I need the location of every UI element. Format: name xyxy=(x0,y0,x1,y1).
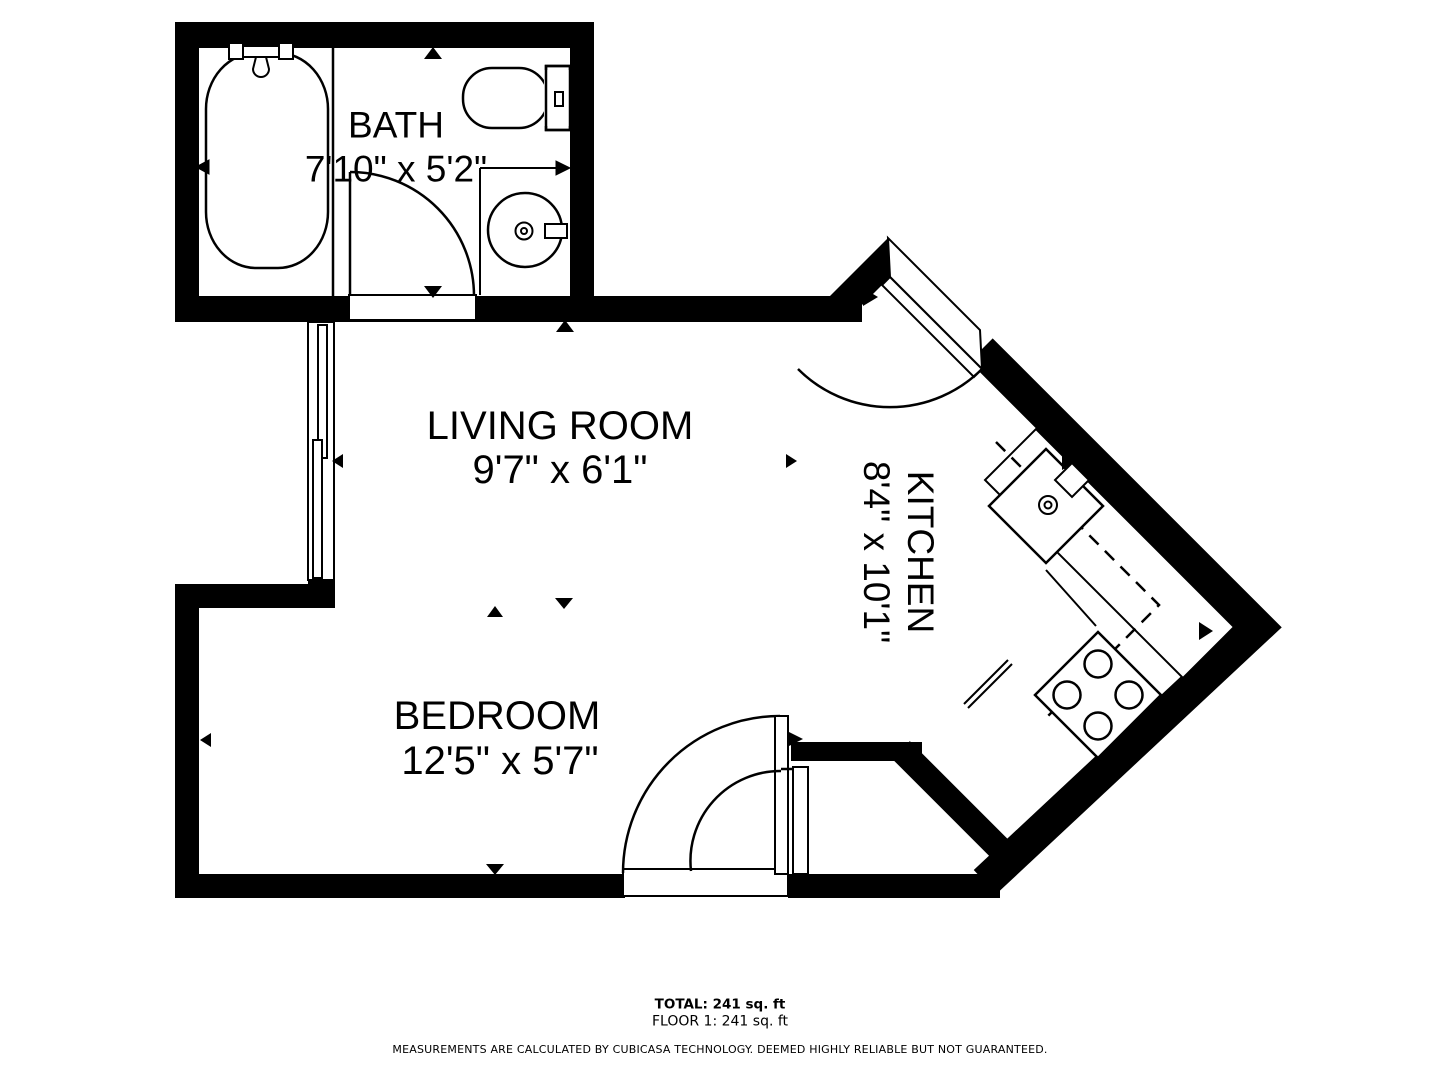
entry-door-leaf xyxy=(775,716,788,874)
marker-up-bedroom-top xyxy=(487,606,503,617)
floorplan-drawing xyxy=(0,0,1440,1080)
counter-end-line-b xyxy=(968,664,1012,708)
wall-bottom-left xyxy=(175,874,625,898)
kitchen-room-dims: 8'4" x 10'1" xyxy=(854,461,898,643)
entry-door-arc-small xyxy=(690,771,781,871)
window-pane-upper xyxy=(318,325,327,458)
floorplan-canvas: BATH 7'10" x 5'2" LIVING ROOM 9'7" x 6'1… xyxy=(0,0,1440,1080)
floor-area-text: FLOOR 1: 241 sq. ft xyxy=(652,1014,788,1029)
bath-door-arc xyxy=(350,172,474,296)
bath-room-label: BATH xyxy=(348,106,444,147)
entry-door-arc xyxy=(623,716,780,873)
marker-up-bath xyxy=(424,47,442,59)
total-area-text: TOTAL: 241 sq. ft xyxy=(655,998,786,1013)
kitchen-door-arc xyxy=(798,369,982,407)
kitchen-faucet-inner xyxy=(1045,502,1052,509)
entry-door-threshold xyxy=(623,869,788,896)
bath-door-threshold xyxy=(349,295,476,320)
wall-bath-left xyxy=(175,22,199,322)
wall-vestibule-diagonal xyxy=(901,750,1005,854)
bathtub-spout xyxy=(253,57,269,77)
window-pane-lower xyxy=(313,440,322,578)
marker-left-bedroom xyxy=(200,733,211,747)
bathtub-faucet-right-knob xyxy=(279,43,293,59)
wall-bottom-right xyxy=(788,874,1000,898)
toilet-flush-button xyxy=(555,92,563,106)
marker-right-living xyxy=(786,454,797,468)
bath-room-dims: 7'10" x 5'2" xyxy=(305,150,487,191)
kitchen-room-label: KITCHEN xyxy=(898,461,942,643)
bedroom-room-label: BEDROOM xyxy=(394,694,601,738)
wall-living-top xyxy=(175,296,862,322)
bath-sink-handle xyxy=(545,224,567,238)
counter-end-line-a xyxy=(964,660,1008,704)
wall-peak xyxy=(824,238,890,321)
marker-down-bedroom xyxy=(486,864,504,875)
dimension-arrow-right xyxy=(556,161,570,175)
bath-sink-drain-inner xyxy=(521,228,527,234)
bedroom-room-dims: 12'5" x 5'7" xyxy=(401,739,598,783)
bathtub-faucet-left-knob xyxy=(229,43,243,59)
wall-bath-right xyxy=(570,22,594,322)
kitchen-label-block: KITCHEN 8'4" x 10'1" xyxy=(854,461,942,643)
living-room-dims: 9'7" x 6'1" xyxy=(473,448,648,492)
living-room-label: LIVING ROOM xyxy=(427,404,694,448)
wall-bedroom-left xyxy=(175,584,199,898)
bathtub-faucet-bar xyxy=(238,46,284,57)
disclaimer-text: MEASUREMENTS ARE CALCULATED BY CUBICASA … xyxy=(392,1044,1047,1056)
marker-down-living-bottom xyxy=(555,598,573,609)
entry-jamb-wall xyxy=(793,767,808,874)
toilet-bowl xyxy=(463,68,548,128)
